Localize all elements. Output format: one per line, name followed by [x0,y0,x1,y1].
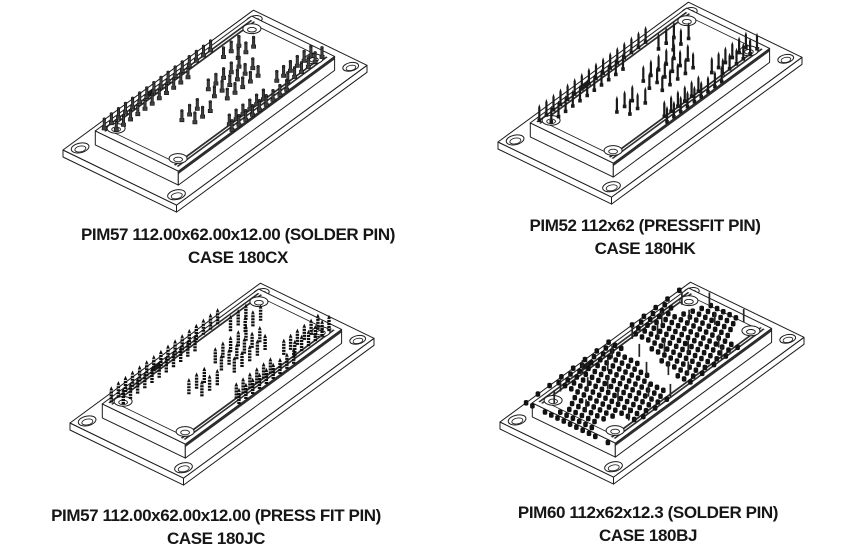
module-drawing-pim57-solder [28,0,373,218]
module-drawing-pim52-pressfit [463,0,808,210]
figure-caption: PIM57 112.00x62.00x12.00 (PRESS FIT PIN)… [0,504,432,550]
drawing-sheet: PIM57 112.00x62.00x12.00 (SOLDER PIN) CA… [0,0,850,550]
caption-line2: CASE 180BJ [443,524,850,547]
caption-line1: PIM57 112.00x62.00x12.00 (SOLDER PIN) [22,223,454,246]
module-drawing-pim60-grid [465,264,810,490]
figure-pim60-grid: PIM60 112x62x12.3 (SOLDER PIN) CASE 180B… [443,272,850,550]
caption-line2: CASE 180HK [440,237,850,260]
caption-line1: PIM52 112x62 (PRESSFIT PIN) [440,214,850,237]
figure-caption: PIM60 112x62x12.3 (SOLDER PIN) CASE 180B… [443,501,850,547]
figure-pim57-pressfit: PIM57 112.00x62.00x12.00 (PRESS FIT PIN)… [0,272,432,550]
figure-caption: PIM57 112.00x62.00x12.00 (SOLDER PIN) CA… [22,223,454,269]
caption-line2: CASE 180JC [0,527,432,550]
caption-line1: PIM60 112x62x12.3 (SOLDER PIN) [443,501,850,524]
caption-line1: PIM57 112.00x62.00x12.00 (PRESS FIT PIN) [0,504,432,527]
module-drawing-pim57-pressfit [35,265,380,491]
figure-pim52-pressfit: PIM52 112x62 (PRESSFIT PIN) CASE 180HK [440,0,850,272]
figure-caption: PIM52 112x62 (PRESSFIT PIN) CASE 180HK [440,214,850,260]
figure-pim57-solder: PIM57 112.00x62.00x12.00 (SOLDER PIN) CA… [22,0,454,272]
